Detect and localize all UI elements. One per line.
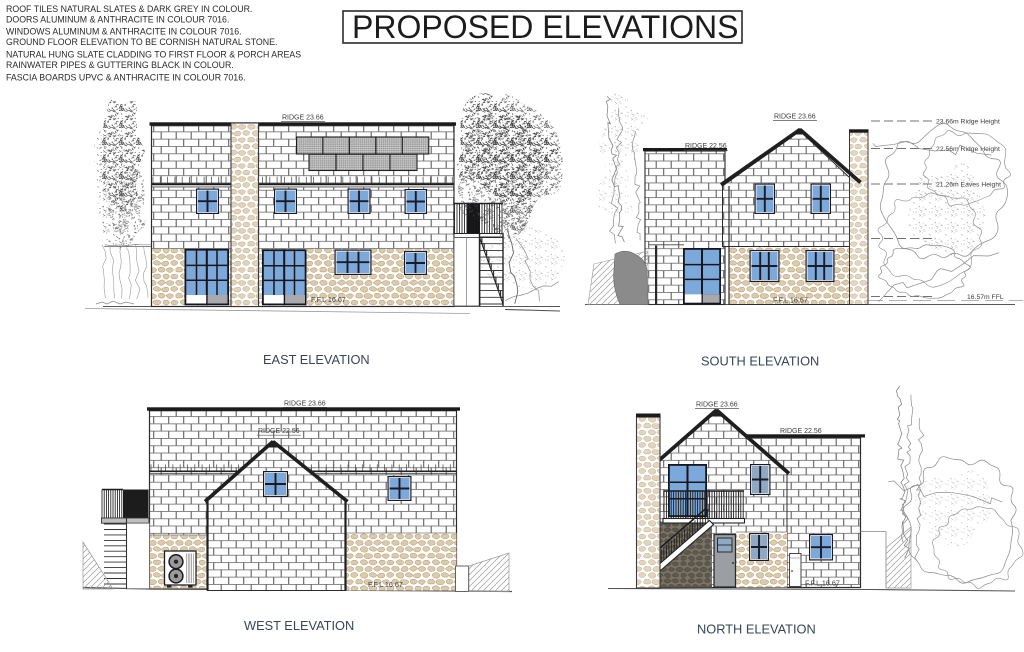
svg-text:RIDGE 22.56: RIDGE 22.56 [780, 428, 822, 435]
svg-text:WEST ELEVATION: WEST ELEVATION [244, 618, 354, 633]
svg-text:NORTH ELEVATION: NORTH ELEVATION [697, 622, 816, 637]
svg-text:RIDGE 23.66: RIDGE 23.66 [774, 114, 816, 121]
svg-text:RIDGE 23.66: RIDGE 23.66 [696, 402, 738, 409]
svg-text:16.57m FFL: 16.57m FFL [967, 294, 1004, 301]
svg-text:RIDGE 22.56: RIDGE 22.56 [258, 428, 300, 435]
svg-text:ROOF TILES NATURAL SLATES & DA: ROOF TILES NATURAL SLATES & DARK GREY IN… [6, 4, 252, 14]
svg-text:EAST ELEVATION: EAST ELEVATION [263, 352, 370, 367]
svg-text:RIDGE 23.66: RIDGE 23.66 [282, 115, 324, 122]
svg-text:DOORS ALUMINUM & ANTHRACITE IN: DOORS ALUMINUM & ANTHRACITE IN COLOUR 70… [6, 15, 229, 25]
svg-text:RAINWATER PIPES & GUTTERING BL: RAINWATER PIPES & GUTTERING BLACK IN COL… [6, 60, 234, 70]
svg-text:NATURAL HUNG SLATE CLADDING TO: NATURAL HUNG SLATE CLADDING TO FIRST FLO… [6, 49, 301, 59]
svg-text:SOUTH ELEVATION: SOUTH ELEVATION [701, 354, 819, 369]
svg-text:WINDOWS ALUMINUM & ANTHRACITE: WINDOWS ALUMINUM & ANTHRACITE IN COLOUR … [6, 26, 242, 36]
svg-text:PROPOSED ELEVATIONS: PROPOSED ELEVATIONS [352, 9, 738, 45]
svg-text:22.56m Ridge Height: 22.56m Ridge Height [936, 146, 1000, 153]
svg-text:FASCIA BOARDS UPVC & ANTHRACIT: FASCIA BOARDS UPVC & ANTHRACITE IN COLOU… [6, 72, 246, 82]
svg-text:RIDGE 22.56: RIDGE 22.56 [685, 143, 727, 150]
svg-text:F.F.L 16.67: F.F.L 16.67 [311, 295, 346, 304]
svg-text:GROUND FLOOR ELEVATION TO BE C: GROUND FLOOR ELEVATION TO BE CORNISH NAT… [6, 37, 277, 47]
svg-text:F.F.L 16.67: F.F.L 16.67 [368, 580, 403, 589]
svg-text:RIDGE 23.66: RIDGE 23.66 [284, 401, 326, 408]
svg-text:F.F.L 16.67: F.F.L 16.67 [805, 579, 840, 588]
svg-text:F.F.L 16.67: F.F.L 16.67 [773, 296, 808, 305]
svg-text:23.66m Ridge Height: 23.66m Ridge Height [936, 119, 1000, 126]
